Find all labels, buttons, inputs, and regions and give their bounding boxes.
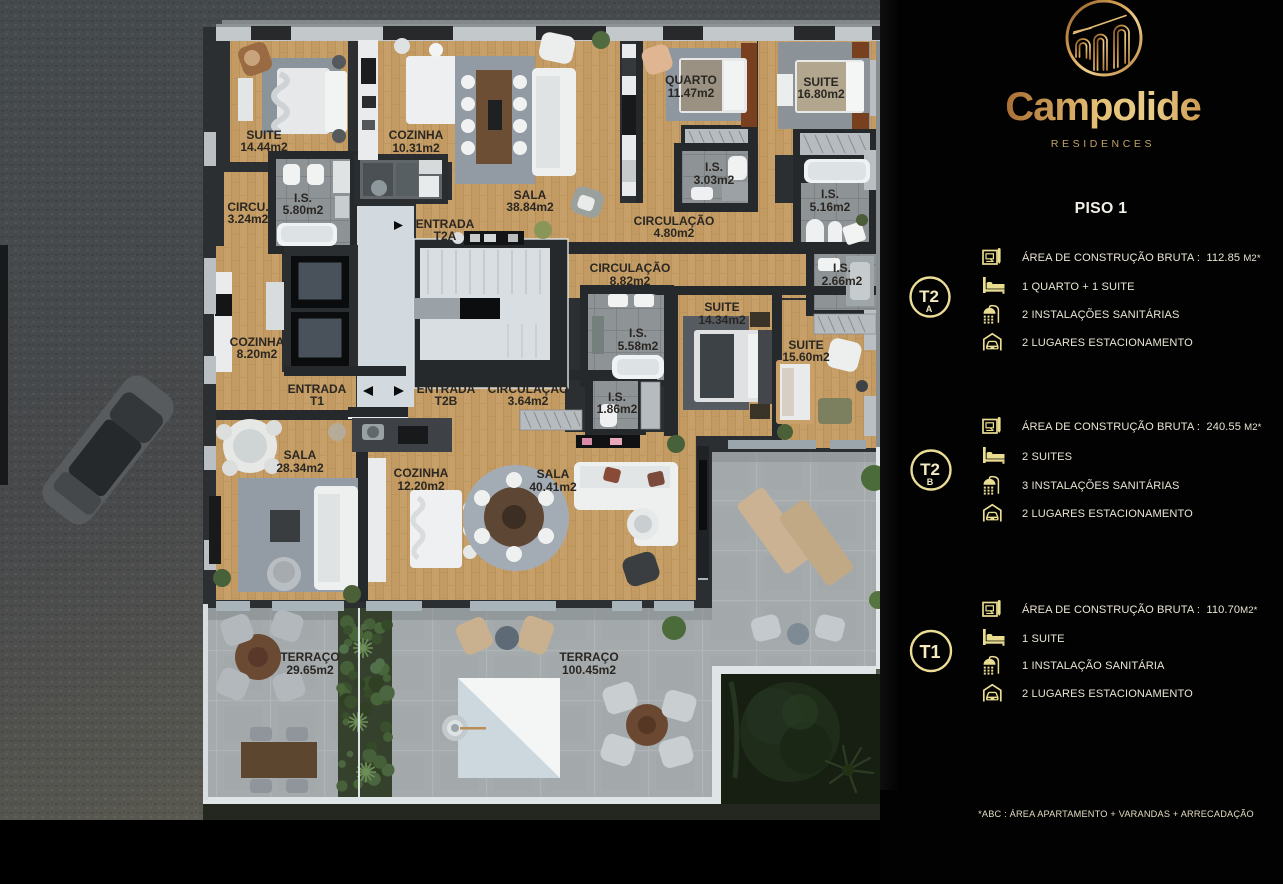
svg-text:29.65m2: 29.65m2: [286, 663, 334, 677]
svg-text:3.03m2: 3.03m2: [694, 173, 735, 187]
svg-text:5.58m2: 5.58m2: [618, 339, 659, 353]
svg-text:I.S.: I.S.: [629, 326, 647, 340]
svg-text:I.S.: I.S.: [821, 187, 839, 201]
svg-text:ÁREA DE CONSTRUÇÃO BRUTA : 11: ÁREA DE CONSTRUÇÃO BRUTA : 112.85 M2*: [1022, 251, 1261, 264]
svg-text:Campolide: Campolide: [1005, 85, 1200, 129]
svg-text:40.41m2: 40.41m2: [529, 480, 577, 494]
svg-text:SALA: SALA: [537, 467, 570, 481]
svg-text:2 LUGARES ESTACIONAMENTO: 2 LUGARES ESTACIONAMENTO: [1022, 508, 1193, 520]
svg-text:SALA: SALA: [284, 448, 317, 462]
svg-text:3.24m2: 3.24m2: [228, 212, 269, 226]
svg-text:14.44m2: 14.44m2: [240, 140, 288, 154]
svg-text:2 LUGARES ESTACIONAMENTO: 2 LUGARES ESTACIONAMENTO: [1022, 688, 1193, 700]
svg-text:PISO 1: PISO 1: [1075, 200, 1128, 217]
svg-text:100.45m2: 100.45m2: [562, 663, 616, 677]
svg-text:2.66m2: 2.66m2: [822, 274, 863, 288]
svg-text:T1: T1: [919, 642, 940, 662]
svg-text:8.20m2: 8.20m2: [237, 347, 278, 361]
svg-text:8.82m2: 8.82m2: [610, 274, 651, 288]
svg-text:11.47m2: 11.47m2: [668, 86, 715, 100]
svg-text:*ABC : ÁREA APARTAMENTO + VAR: *ABC : ÁREA APARTAMENTO + VARANDAS + ARR…: [978, 809, 1254, 819]
svg-text:5.80m2: 5.80m2: [283, 203, 324, 217]
svg-text:T2B: T2B: [435, 394, 458, 408]
svg-text:I.S.: I.S.: [705, 160, 723, 174]
svg-text:CIRCULAÇÃO: CIRCULAÇÃO: [590, 260, 671, 275]
svg-text:1 QUARTO + 1 SUITE: 1 QUARTO + 1 SUITE: [1022, 281, 1135, 293]
svg-text:TERRAÇO: TERRAÇO: [559, 650, 618, 664]
svg-text:12.20m2: 12.20m2: [397, 479, 445, 493]
svg-text:14.34m2: 14.34m2: [698, 313, 746, 327]
svg-text:16.80m2: 16.80m2: [797, 87, 845, 101]
svg-text:3 INSTALAÇÕES SANITÁRIAS: 3 INSTALAÇÕES SANITÁRIAS: [1022, 479, 1180, 492]
svg-text:2 INSTALAÇÕES SANITÁRIAS: 2 INSTALAÇÕES SANITÁRIAS: [1022, 308, 1180, 321]
svg-text:A: A: [926, 304, 933, 314]
svg-text:15.60m2: 15.60m2: [782, 350, 830, 364]
svg-text:1 SUITE: 1 SUITE: [1022, 633, 1065, 645]
svg-text:I.S.: I.S.: [833, 261, 851, 275]
svg-text:T2A: T2A: [434, 229, 457, 243]
svg-text:38.84m2: 38.84m2: [506, 200, 554, 214]
svg-text:T1: T1: [310, 394, 324, 408]
svg-text:5.16m2: 5.16m2: [810, 200, 851, 214]
svg-text:3.64m2: 3.64m2: [508, 394, 549, 408]
svg-text:COZINHA: COZINHA: [394, 466, 449, 480]
svg-text:4.80m2: 4.80m2: [654, 226, 695, 240]
svg-text:ÁREA DE CONSTRUÇÃO BRUTA : 24: ÁREA DE CONSTRUÇÃO BRUTA : 240.55 M2*: [1022, 420, 1262, 433]
svg-text:QUARTO: QUARTO: [665, 73, 717, 87]
svg-text:B: B: [927, 477, 934, 487]
svg-text:RESIDENCES: RESIDENCES: [1051, 138, 1155, 150]
svg-text:COZINHA: COZINHA: [389, 128, 444, 142]
svg-text:ÁREA DE CONSTRUÇÃO BRUTA : 11: ÁREA DE CONSTRUÇÃO BRUTA : 110.70M2*: [1022, 603, 1258, 616]
svg-text:10.31m2: 10.31m2: [392, 141, 440, 155]
svg-text:28.34m2: 28.34m2: [276, 461, 324, 475]
svg-text:1 INSTALAÇÃO SANITÁRIA: 1 INSTALAÇÃO SANITÁRIA: [1022, 659, 1165, 672]
svg-text:TERRAÇO: TERRAÇO: [280, 650, 339, 664]
svg-text:SUITE: SUITE: [704, 300, 739, 314]
svg-text:2 SUITES: 2 SUITES: [1022, 451, 1072, 463]
svg-text:1.86m2: 1.86m2: [597, 402, 638, 416]
svg-text:2 LUGARES ESTACIONAMENTO: 2 LUGARES ESTACIONAMENTO: [1022, 337, 1193, 349]
